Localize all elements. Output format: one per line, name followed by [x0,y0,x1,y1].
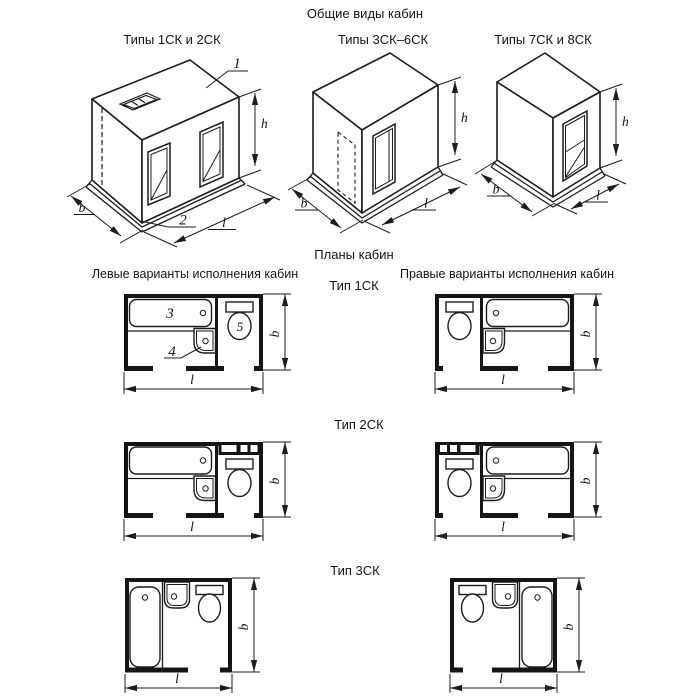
callout-5: 5 [237,319,244,334]
washbasin [194,476,216,501]
dim-label-b: b [301,196,308,211]
callout-1: 1 [233,56,241,72]
plan-1sk-right: b l [435,294,602,394]
dim-label-b: b [561,623,576,630]
dim-label-b: b [578,330,593,337]
plan-3sk-right: b l [450,578,585,693]
bathtub [130,447,212,474]
dim-label-b: b [493,182,500,197]
toilet-bowl [448,470,471,497]
plan-2sk-left: b l [124,442,291,541]
washbasin [165,582,190,608]
dim-label-h: h [461,110,468,125]
washbasin [483,329,505,354]
toilet-bowl [448,313,471,340]
dim-label-b: b [79,200,86,215]
bathtub [130,587,160,667]
callout-2: 2 [179,213,187,229]
dimension-l: l [124,372,263,394]
dimension-l: l [435,519,574,541]
washbasin [483,476,505,501]
dimension-b: b [557,578,585,672]
iso-view-types-1-2: 1 2 h b l [67,56,280,247]
toilet-tank [226,302,253,312]
dimension-b: b [263,294,291,370]
toilet-bowl [462,594,484,622]
dim-label-b: b [267,477,282,484]
dim-label-h: h [261,116,268,131]
dim-label-l: l [501,372,505,387]
washbasin [493,582,518,608]
dimension-b: b [574,442,602,517]
dim-label-l: l [222,215,226,230]
dim-label-l: l [190,372,194,387]
dimension-l: l [125,671,232,693]
plan-2sk-right: b l [435,442,602,541]
dim-label-b: b [578,477,593,484]
dim-label-l: l [596,188,600,203]
ventilation-unit [219,442,262,455]
toilet-tank [446,459,473,469]
dimension-h: h [438,77,468,167]
dimension-h: h [239,89,268,178]
dim-label-b: b [236,623,251,630]
iso-view-types-3-6: h b l [288,53,468,233]
toilet-bowl [199,594,221,622]
plan-3sk-left: b l [125,578,260,693]
dimension-h: h [600,84,629,168]
dimension-b: b [232,578,260,672]
dim-label-l: l [175,671,179,686]
dimension-l: l [124,519,263,541]
drawing-sheet: Общие виды кабин Типы 1СК и 2СК Типы 3СК… [0,0,700,700]
dim-label-b: b [267,330,282,337]
toilet-tank [446,302,473,312]
toilet-tank [459,586,486,595]
plan-1sk-left: 3 4 5 b l [124,294,291,394]
dim-label-l: l [499,671,503,686]
dim-label-l: l [424,196,428,211]
callout-4: 4 [168,344,176,360]
drawing-graphics: 1 2 h b l [0,0,700,700]
toilet-tank [226,459,253,469]
bathtub [522,587,552,667]
dimension-l: l [450,671,557,693]
dimension-b: b [574,294,602,370]
dim-label-l: l [501,519,505,534]
dim-label-l: l [190,519,194,534]
toilet-bowl [228,470,251,497]
dimension-b: b [263,442,291,517]
iso-view-types-7-8: h b l [475,53,629,216]
dim-label-h: h [622,114,629,129]
ventilation-unit [437,442,480,455]
dimension-l: l [435,372,574,394]
toilet-tank [196,586,223,595]
callout-3: 3 [165,306,174,322]
